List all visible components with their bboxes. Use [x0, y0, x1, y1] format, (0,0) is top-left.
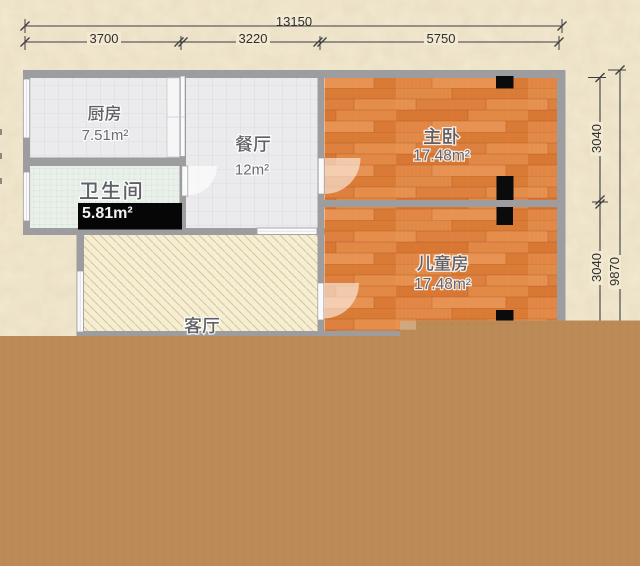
svg-text:7.51m²: 7.51m² [82, 127, 129, 144]
svg-text:3220: 3220 [239, 31, 268, 46]
svg-text:17.48m²: 17.48m² [413, 148, 470, 165]
svg-text:3040: 3040 [589, 253, 604, 282]
svg-text:3040: 3040 [589, 124, 604, 153]
svg-text:13150: 13150 [276, 14, 312, 29]
svg-text:5.81m²: 5.81m² [82, 205, 133, 222]
svg-text:12m²: 12m² [235, 162, 269, 179]
svg-text:17.48m²: 17.48m² [414, 276, 471, 293]
svg-text:9870: 9870 [607, 257, 622, 286]
svg-text:3700: 3700 [90, 31, 119, 46]
svg-text:5750: 5750 [427, 31, 456, 46]
